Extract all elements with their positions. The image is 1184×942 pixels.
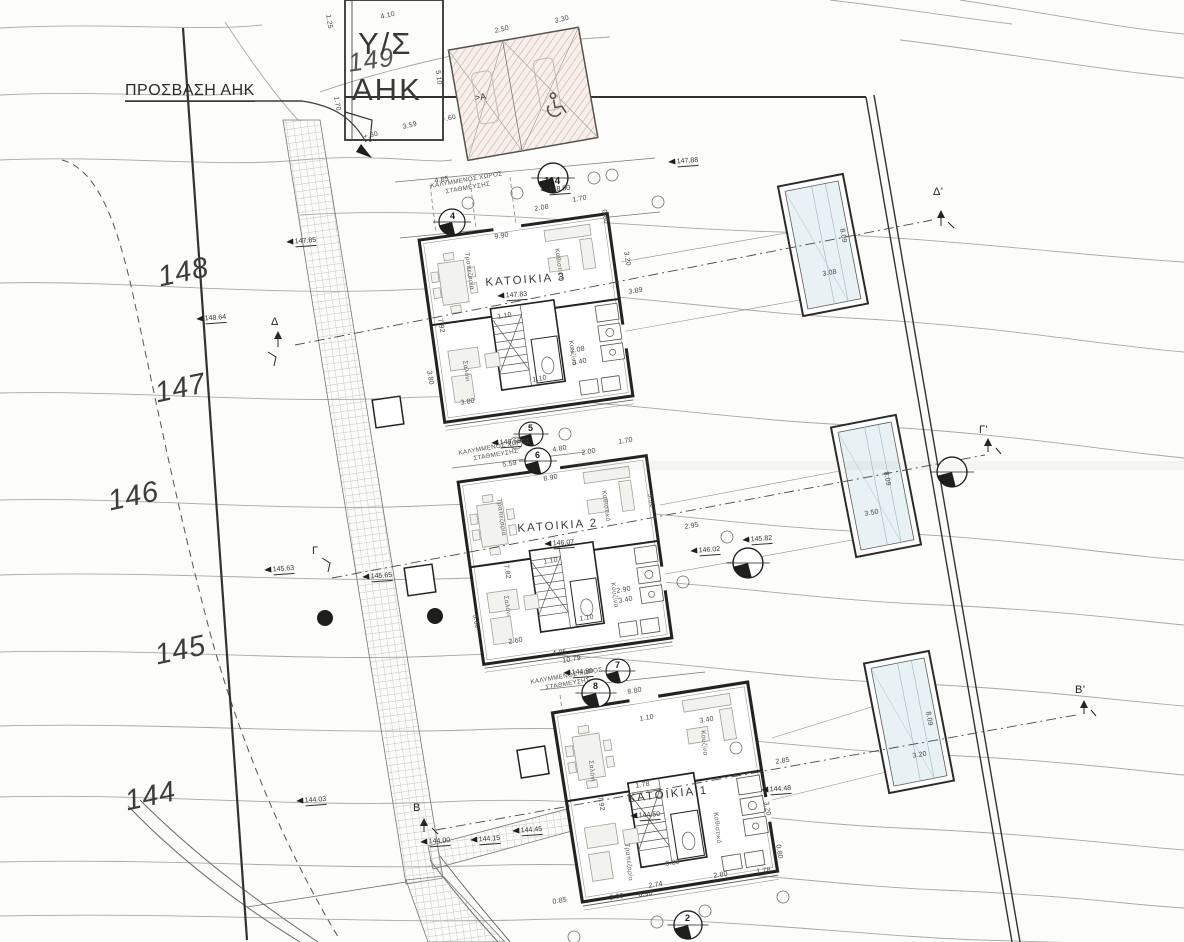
section-a-label: >A xyxy=(474,91,487,103)
station-4: 4 xyxy=(450,211,455,221)
spot-elevation: 144.15 xyxy=(470,834,500,844)
dim-label: 5.10 xyxy=(434,70,442,85)
spot-elevation: 144.89 xyxy=(563,667,593,677)
pool-house3 xyxy=(778,174,868,316)
spot-elevation: 145.63 xyxy=(264,564,294,574)
spot-elevation: 145.65 xyxy=(362,571,392,581)
station-7: 7 xyxy=(615,660,620,670)
house-2 xyxy=(458,456,673,673)
spot-elevation: 144.48 xyxy=(761,784,791,794)
station-6: 6 xyxy=(535,450,540,460)
section-g: Γ xyxy=(312,545,319,557)
pool-house2 xyxy=(831,415,921,557)
spot-elevation: 147.83 xyxy=(497,290,527,300)
spot-elevation: 146.07 xyxy=(544,538,574,548)
scan-artifact xyxy=(575,461,1184,470)
spot-elevation: 145.82 xyxy=(742,534,772,544)
section-d-prime: Δ' xyxy=(933,186,943,198)
disabled-parking xyxy=(448,27,597,160)
spot-elevation: 147.85 xyxy=(286,236,316,246)
station-2: 2 xyxy=(685,913,690,923)
station-8: 8 xyxy=(593,681,598,691)
spot-elevation: 144.50 xyxy=(630,810,660,820)
spot-elevation: 144.03 xyxy=(296,795,326,805)
spot-elevation: 147.88 xyxy=(668,156,698,166)
spot-elevation: 148.00 xyxy=(540,184,570,194)
section-d: Δ xyxy=(271,316,279,328)
section-b: Β xyxy=(413,802,421,814)
pool-house1 xyxy=(864,651,954,793)
spot-elevation: 144.00 xyxy=(420,836,450,846)
station-5: 5 xyxy=(528,423,533,433)
substation-label-line2: ΑΗΚ xyxy=(352,74,422,105)
section-g-prime: Γ' xyxy=(979,424,988,436)
spot-elevation: 146.02 xyxy=(690,545,720,555)
access-label: ΠΡΟΣΒΑΣΗ ΑΗΚ xyxy=(125,82,255,102)
substation-label-line1: Υ/Σ xyxy=(358,28,412,59)
section-b-prime: Β' xyxy=(1075,684,1085,696)
spot-elevation: 148.64 xyxy=(196,313,226,323)
spot-elevation: 144.45 xyxy=(512,825,542,835)
site-plan-sheet: ΠΡΟΣΒΑΣΗ ΑΗΚ 149 Υ/Σ ΑΗΚ >A 148 147 146 … xyxy=(0,0,1184,942)
house-3 xyxy=(419,214,634,431)
spot-elevation: 146.58 xyxy=(491,437,521,447)
